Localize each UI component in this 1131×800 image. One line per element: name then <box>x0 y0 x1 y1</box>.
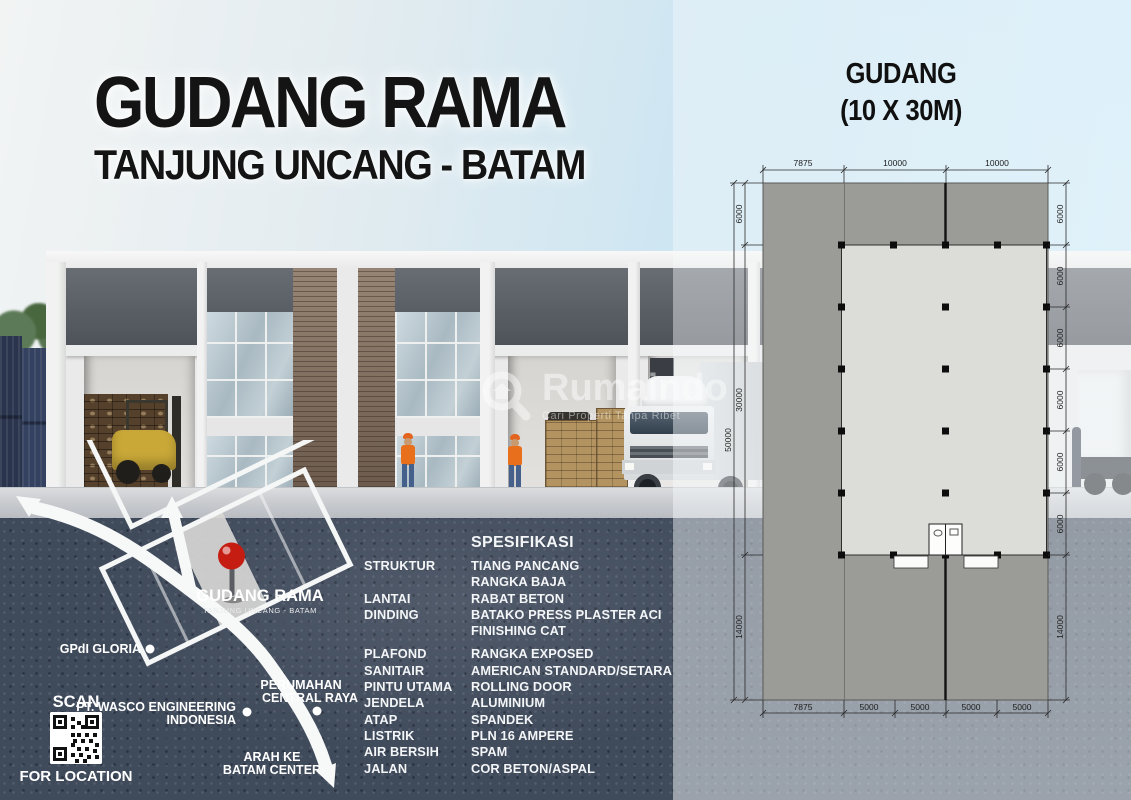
plan-heading-line1: GUDANG <box>777 56 1025 93</box>
spec-heading: SPESIFIKASI <box>471 534 680 552</box>
landmark-dot <box>313 707 322 716</box>
site-label: GUDANG RAMA <box>196 587 323 605</box>
spec-value: COR BETON/ASPAL <box>471 761 680 777</box>
pin-ball-icon <box>218 543 245 570</box>
dim-label: 6000 <box>1055 204 1065 223</box>
spec-value: ALUMINIUM <box>471 695 680 711</box>
lot-divider <box>259 492 305 586</box>
landmark-label: PT. WASCO ENGINEERING <box>76 700 236 714</box>
spec-value: SPANDEK <box>471 712 680 728</box>
dim-label: 10000 <box>985 158 1009 168</box>
spec-row: RANGKA BAJA <box>364 574 680 590</box>
flyer-poster: Rumaindo Cari Properti Tanpa Ribet GUDAN… <box>0 0 1131 800</box>
spec-row: PLAFONDRANGKA EXPOSED <box>364 646 680 662</box>
spec-label: LANTAI <box>364 591 471 607</box>
spec-row: FINISHING CAT <box>364 623 680 639</box>
dim-label: 5000 <box>860 702 879 712</box>
site-sublabel: TANJUNG UNCANG - BATAM <box>203 606 317 615</box>
spec-label: DINDING <box>364 607 471 623</box>
specification-panel: SPESIFIKASI STRUKTURTIANG PANCANG RANGKA… <box>364 534 680 777</box>
dim-label: 10000 <box>883 158 907 168</box>
headline: GUDANG RAMA TANJUNG UNCANG - BATAM <box>94 64 585 188</box>
dim-label: 5000 <box>962 702 981 712</box>
spec-label: ATAP <box>364 712 471 728</box>
spec-row: STRUKTURTIANG PANCANG <box>364 558 680 574</box>
page-subtitle: TANJUNG UNCANG - BATAM <box>94 142 585 188</box>
direction-label: ARAH KE <box>244 750 301 764</box>
spec-row: DINDINGBATAKO PRESS PLASTER ACI <box>364 607 680 623</box>
scan-label: SCAN <box>53 693 100 711</box>
spec-value: SPAM <box>471 744 680 760</box>
spec-row: JENDELAALUMINIUM <box>364 695 680 711</box>
arrowhead-icon <box>161 496 183 518</box>
spec-label: STRUKTUR <box>364 558 471 574</box>
dim-label: 5000 <box>1013 702 1032 712</box>
spec-value: ROLLING DOOR <box>471 679 680 695</box>
landmark-dot <box>146 645 155 654</box>
dim-label: 30000 <box>734 388 744 412</box>
plan-heading: GUDANG (10 X 30M) <box>777 56 1025 130</box>
plan-heading-line2: (10 X 30M) <box>777 93 1025 130</box>
door-ramp <box>894 556 928 568</box>
dim-label: 14000 <box>1055 615 1065 639</box>
pin-highlight <box>223 547 231 555</box>
spec-value: RABAT BETON <box>471 591 680 607</box>
for-location-label: FOR LOCATION <box>19 768 132 785</box>
dim-label: 6000 <box>1055 328 1065 347</box>
spec-row: JALANCOR BETON/ASPAL <box>364 761 680 777</box>
spec-value: AMERICAN STANDARD/SETARA <box>471 663 680 679</box>
plan-interior <box>842 245 1047 555</box>
rumaindo-logo-icon <box>478 368 532 422</box>
landmark-label: PERUMAHAN <box>260 678 341 692</box>
dim-label: 6000 <box>734 204 744 223</box>
toilet-cell <box>929 524 962 555</box>
dim-label: 6000 <box>1055 390 1065 409</box>
spec-row: ATAPSPANDEK <box>364 712 680 728</box>
dim-label: 14000 <box>734 615 744 639</box>
spec-label: PINTU UTAMA <box>364 679 471 695</box>
window-sill <box>205 418 293 436</box>
dim-label: 5000 <box>911 702 930 712</box>
dim-label: 6000 <box>1055 514 1065 533</box>
landmark-label: INDONESIA <box>167 713 236 727</box>
spec-label <box>364 623 471 639</box>
dim-label: 7875 <box>794 158 813 168</box>
office-window-grid <box>395 312 480 418</box>
dim-label: 6000 <box>1055 452 1065 471</box>
spec-value: RANGKA BAJA <box>471 574 680 590</box>
spec-label: JALAN <box>364 761 471 777</box>
qr-code <box>50 712 102 764</box>
spec-label: LISTRIK <box>364 728 471 744</box>
landmark-dot <box>243 708 252 717</box>
spec-label: AIR BERSIH <box>364 744 471 760</box>
landmark-label: CENTRAL RAYA <box>262 691 358 705</box>
dim-label: 7875 <box>794 702 813 712</box>
direction-label: BATAM CENTER <box>223 763 321 777</box>
spec-row: SANITAIRAMERICAN STANDARD/SETARA <box>364 663 680 679</box>
spec-label: PLAFOND <box>364 646 471 662</box>
map-blocks <box>45 440 391 663</box>
door-ramp <box>964 556 998 568</box>
site-label-group: GUDANG RAMA TANJUNG UNCANG - BATAM <box>196 587 323 615</box>
page-title: GUDANG RAMA <box>94 64 585 142</box>
spec-row: LANTAIRABAT BETON <box>364 591 680 607</box>
spec-value: RANGKA EXPOSED <box>471 646 680 662</box>
spec-value: PLN 16 AMPERE <box>471 728 680 744</box>
landmarks: GPdI GLORIA PT. WASCO ENGINEERING INDONE… <box>60 642 358 777</box>
spec-label <box>364 574 471 590</box>
floor-plan: 7875 10000 10000 7875 5000 5000 5000 500… <box>690 128 1131 732</box>
spec-value: BATAKO PRESS PLASTER ACI <box>471 607 680 623</box>
spec-row: LISTRIKPLN 16 AMPERE <box>364 728 680 744</box>
spec-row: PINTU UTAMAROLLING DOOR <box>364 679 680 695</box>
office-window-grid <box>205 312 293 418</box>
dim-label-total: 50000 <box>723 428 733 452</box>
spec-row: AIR BERSIHSPAM <box>364 744 680 760</box>
spec-label: JENDELA <box>364 695 471 711</box>
dim-label: 6000 <box>1055 266 1065 285</box>
landmark-label: GPdI GLORIA <box>60 642 141 656</box>
spec-value: FINISHING CAT <box>471 623 680 639</box>
spec-label: SANITAIR <box>364 663 471 679</box>
spec-value: TIANG PANCANG <box>471 558 680 574</box>
